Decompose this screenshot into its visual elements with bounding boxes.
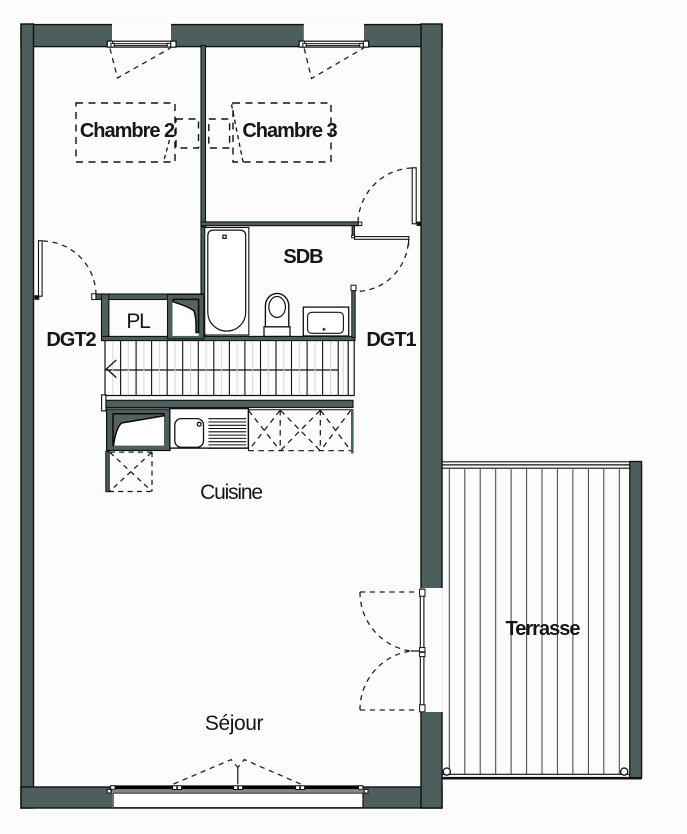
svg-text:Cuisine: Cuisine	[200, 481, 262, 504]
svg-text:Chambre 3: Chambre 3	[242, 120, 337, 142]
svg-text:Séjour: Séjour	[205, 712, 264, 735]
svg-text:Chambre 2: Chambre 2	[80, 120, 175, 142]
svg-text:DGT1: DGT1	[366, 329, 416, 351]
svg-text:PL: PL	[126, 310, 150, 333]
svg-text:SDB: SDB	[283, 246, 323, 268]
svg-text:DGT2: DGT2	[46, 329, 96, 351]
svg-text:Terrasse: Terrasse	[506, 618, 581, 640]
